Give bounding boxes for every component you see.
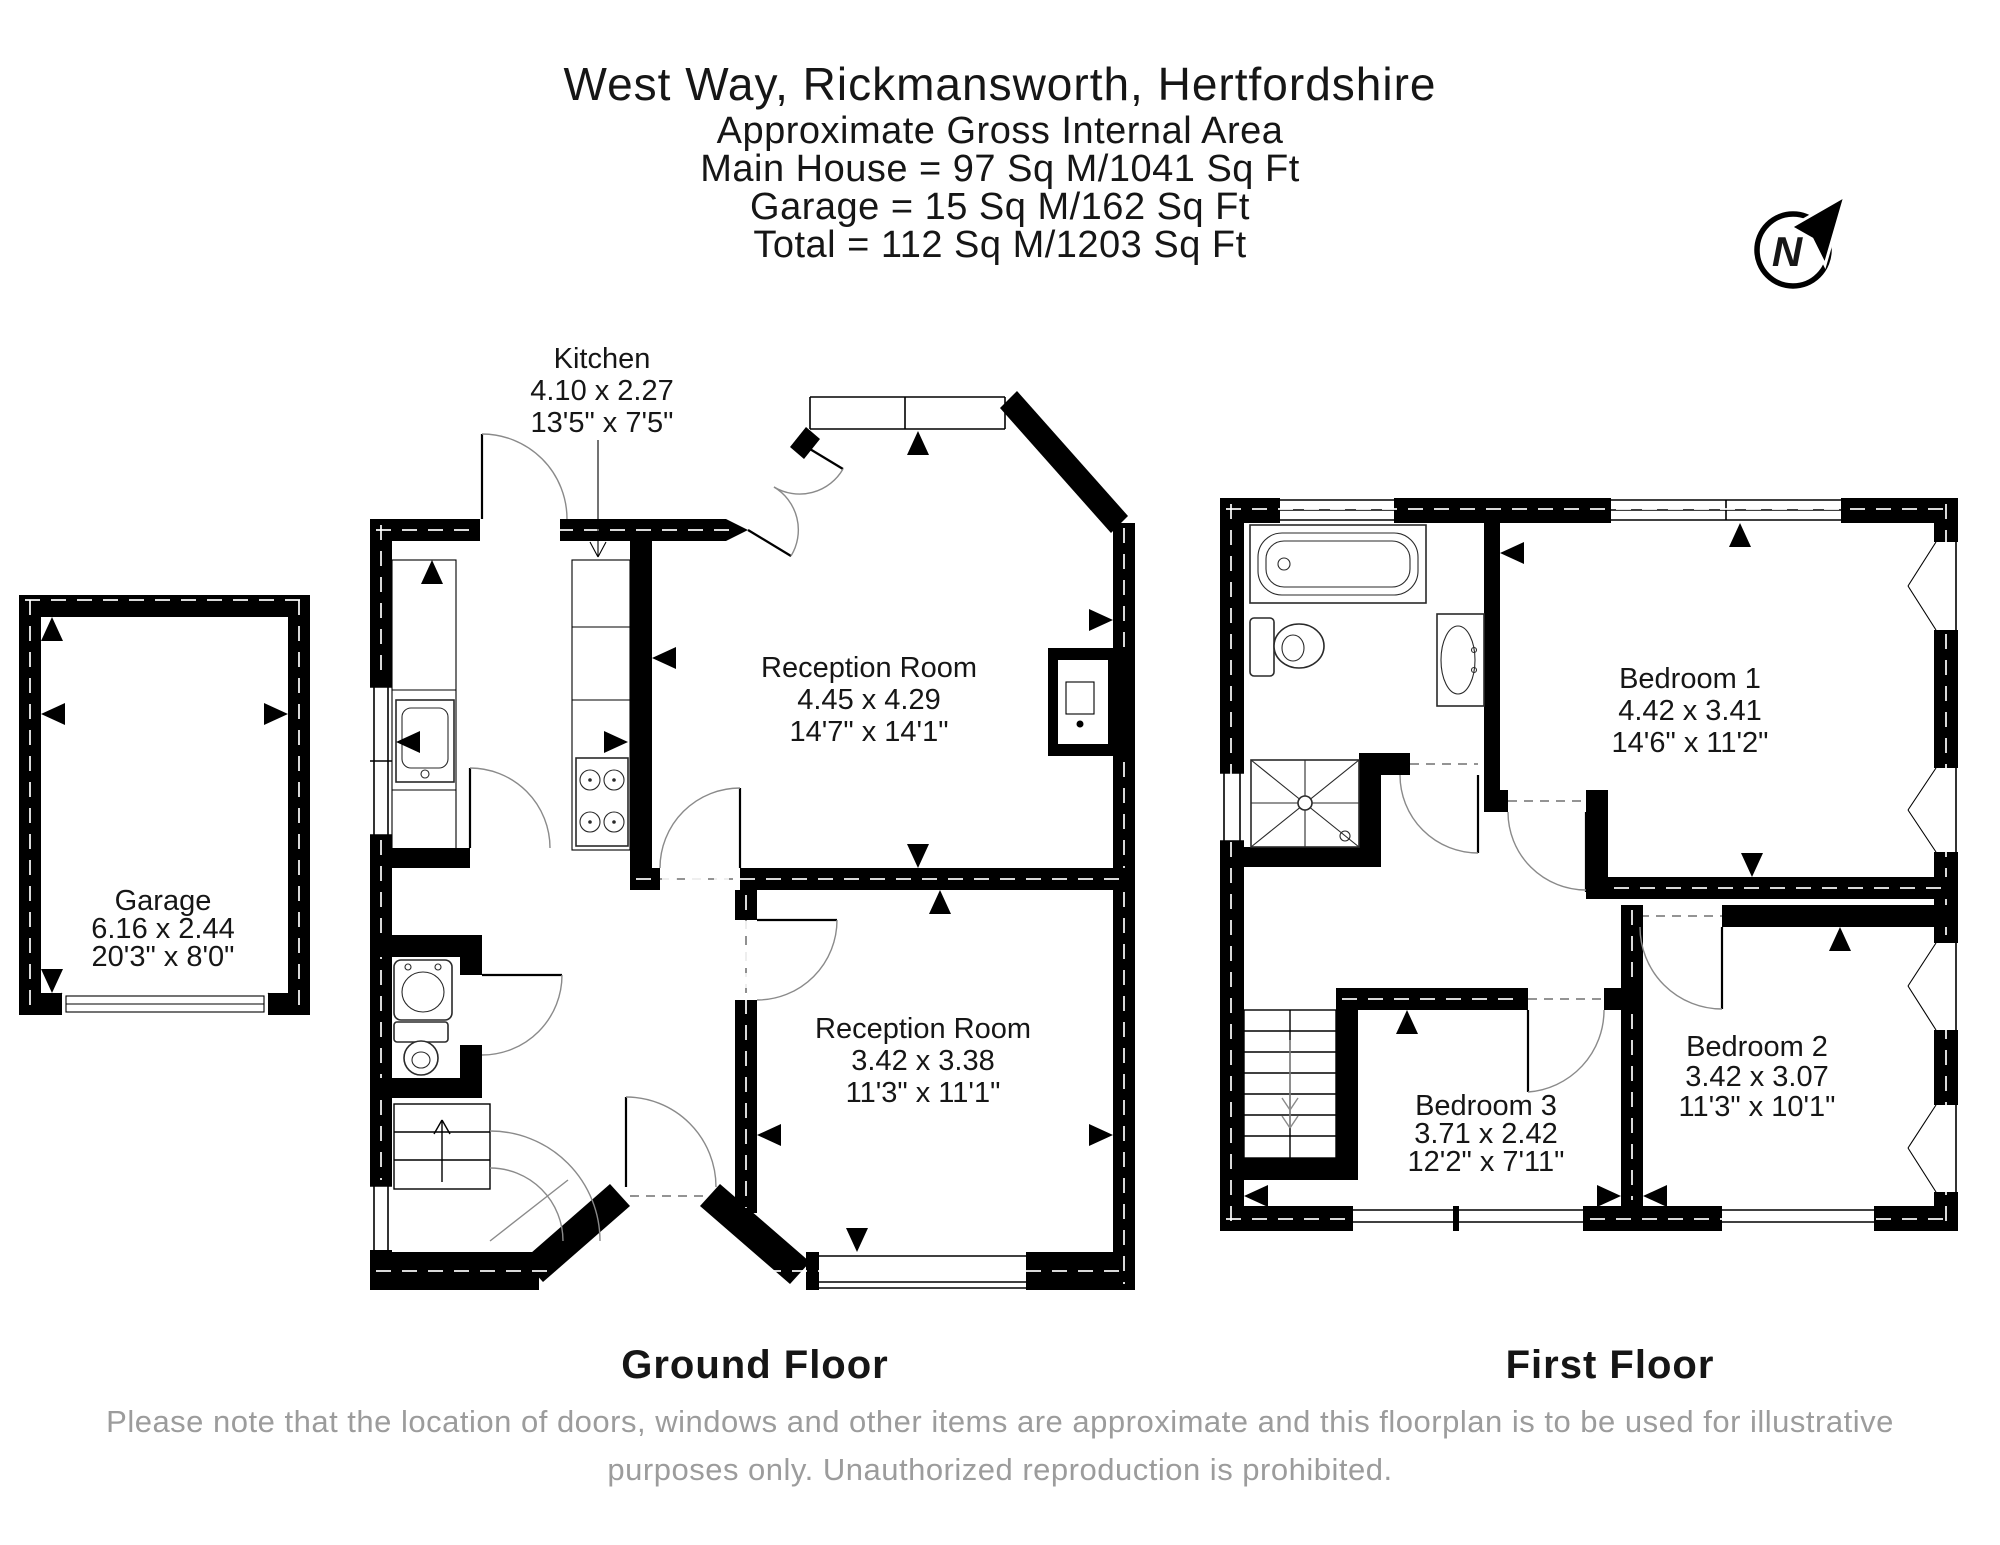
reception2-door [757, 920, 837, 1000]
first-floor-plan: Bedroom 1 4.42 x 3.41 14'6" x 11'2" Bedr… [1220, 498, 1958, 1387]
disclaimer: Please note that the location of doors, … [106, 1404, 1894, 1487]
kitchen-room: Kitchen 4.10 x 2.27 13'5" x 7'5" [392, 343, 674, 868]
first-floor-label: First Floor [1506, 1343, 1715, 1387]
dimension-marker-left [41, 703, 65, 725]
dimension-marker-right [1089, 1124, 1113, 1146]
dimension-marker-left [1500, 542, 1524, 564]
bedroom2-side-window [1908, 943, 1958, 1030]
bay-wall-cap [790, 427, 820, 459]
title-subtitle: Approximate Gross Internal Area [717, 110, 1284, 152]
kitchen-imperial: 13'5" x 7'5" [531, 407, 674, 439]
bedroom1-side-window [1908, 542, 1958, 630]
dimension-marker-up [1729, 523, 1751, 547]
bedroom3-door [1528, 999, 1604, 1092]
dimension-marker-right [604, 731, 628, 753]
dimension-marker-left [652, 647, 676, 669]
hob-icon [576, 758, 628, 846]
garage-imperial: 20'3" x 8'0" [92, 941, 235, 973]
bedroom2-imperial: 11'3" x 10'1" [1679, 1091, 1836, 1123]
compass-north-label: N [1772, 228, 1804, 275]
bathroom-window [1280, 498, 1394, 523]
hallway [370, 935, 716, 1241]
bathroom [1244, 523, 1500, 867]
dimension-marker-left [757, 1124, 781, 1146]
bedroom2-door [1640, 927, 1722, 1009]
back-door [482, 434, 567, 519]
reception2-metric: 3.42 x 3.38 [851, 1045, 995, 1077]
dimension-marker-right [1597, 1185, 1621, 1207]
stairs-first [1244, 988, 1358, 1180]
front-door [626, 1097, 716, 1196]
dimension-marker-left [1244, 1185, 1268, 1207]
bedroom2-label: Bedroom 2 [1686, 1031, 1828, 1063]
shower-icon [1251, 760, 1359, 847]
reception2-imperial: 11'3" x 11'1" [846, 1077, 1001, 1109]
dimension-marker-up [421, 560, 443, 584]
reception1-imperial: 14'7" x 14'1" [789, 716, 948, 748]
dimension-marker-up [1829, 927, 1851, 951]
porch-diagonal-left [523, 1184, 630, 1282]
bedroom1-label: Bedroom 1 [1619, 663, 1761, 695]
dimension-marker-up [929, 890, 951, 914]
bedroom2-side-window [1908, 1105, 1958, 1192]
kitchen-label: Kitchen [554, 343, 651, 375]
title-total-area: Total = 112 Sq M/1203 Sq Ft [753, 224, 1246, 266]
bedroom1-side-window [1908, 768, 1958, 852]
dimension-marker-up [1396, 1010, 1418, 1034]
dimension-marker-down [1741, 853, 1763, 877]
dimension-marker-down [41, 969, 63, 993]
bedroom1-metric: 4.42 x 3.41 [1618, 695, 1762, 727]
title-garage-area: Garage = 15 Sq M/162 Sq Ft [750, 186, 1250, 228]
kitchen-door [470, 768, 550, 848]
reception-room-1: Reception Room 4.45 x 4.29 14'7" x 14'1" [630, 431, 1135, 890]
disclaimer-line-1: Please note that the location of doors, … [106, 1404, 1894, 1439]
reception1-label: Reception Room [761, 652, 977, 684]
wash-basin-icon [394, 960, 452, 1020]
reception-room-2: Reception Room 3.42 x 3.38 11'3" x 11'1" [735, 890, 1113, 1252]
kitchen-metric: 4.10 x 2.27 [530, 375, 674, 407]
disclaimer-line-2: purposes only. Unauthorized reproduction… [607, 1452, 1392, 1487]
toilet-icon [1250, 618, 1324, 676]
bathroom-door [1400, 764, 1478, 853]
bedroom3-imperial: 12'2" x 7'11" [1408, 1146, 1565, 1178]
reception1-metric: 4.45 x 4.29 [797, 684, 941, 716]
page-title: West Way, Rickmansworth, Hertfordshire [563, 58, 1436, 110]
dimension-marker-up [41, 617, 63, 641]
dimension-marker-left [1643, 1185, 1667, 1207]
ground-floor-label: Ground Floor [621, 1343, 889, 1387]
dimension-marker-up [907, 431, 929, 455]
bedroom-1: Bedroom 1 4.42 x 3.41 14'6" x 11'2" [1500, 523, 1768, 877]
dimension-marker-down [907, 844, 929, 868]
title-block: West Way, Rickmansworth, Hertfordshire A… [563, 58, 1436, 266]
bedroom2-metric: 3.42 x 3.07 [1685, 1061, 1829, 1093]
wash-basin-icon [1437, 614, 1484, 706]
french-doors [748, 443, 843, 556]
hall-window [370, 1186, 392, 1250]
wc-door [482, 975, 562, 1055]
kitchen-window [370, 687, 392, 835]
bathtub-icon [1250, 525, 1426, 603]
reception1-door [660, 788, 740, 868]
bay-diagonal-wall [1000, 391, 1128, 533]
fireplace [1048, 648, 1135, 756]
dimension-marker-right [1089, 609, 1113, 631]
floorplan-canvas: West Way, Rickmansworth, Hertfordshire A… [0, 0, 2000, 1545]
dimension-marker-right [264, 703, 288, 725]
compass-north-icon: N [1757, 196, 1845, 286]
dimension-marker-down [846, 1228, 868, 1252]
bay-window [810, 397, 1005, 429]
garage-room: Garage 6.16 x 2.44 20'3" x 8'0" [19, 595, 310, 1015]
toilet-icon [394, 1022, 448, 1075]
ground-floor-plan: Garage 6.16 x 2.44 20'3" x 8'0" [19, 343, 1135, 1387]
floorplan-page: West Way, Rickmansworth, Hertfordshire A… [0, 0, 2000, 1545]
bedroom1-door [1508, 801, 1586, 892]
bedroom1-top-window [1611, 498, 1841, 523]
bedroom1-imperial: 14'6" x 11'2" [1612, 727, 1769, 759]
bedroom-2: Bedroom 2 3.42 x 3.07 11'3" x 10'1" [1621, 905, 1958, 1207]
title-main-house-area: Main House = 97 Sq M/1041 Sq Ft [700, 148, 1300, 190]
reception2-label: Reception Room [815, 1013, 1031, 1045]
